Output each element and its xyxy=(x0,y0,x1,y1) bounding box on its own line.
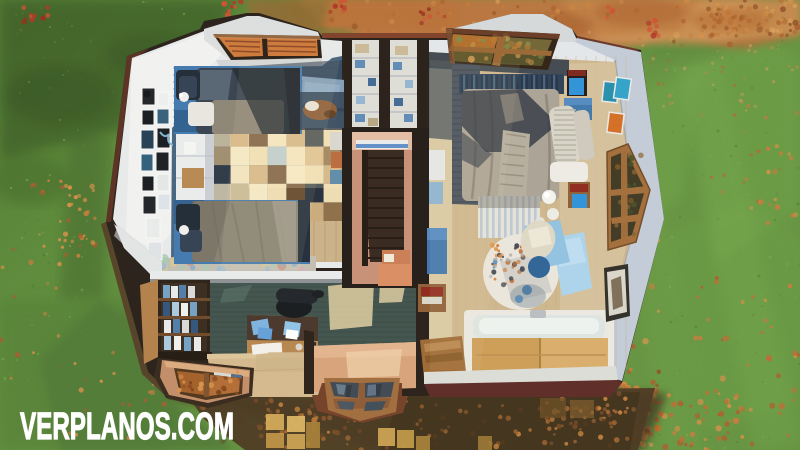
svg-text:VERPLANOS.COM: VERPLANOS.COM xyxy=(20,406,234,448)
